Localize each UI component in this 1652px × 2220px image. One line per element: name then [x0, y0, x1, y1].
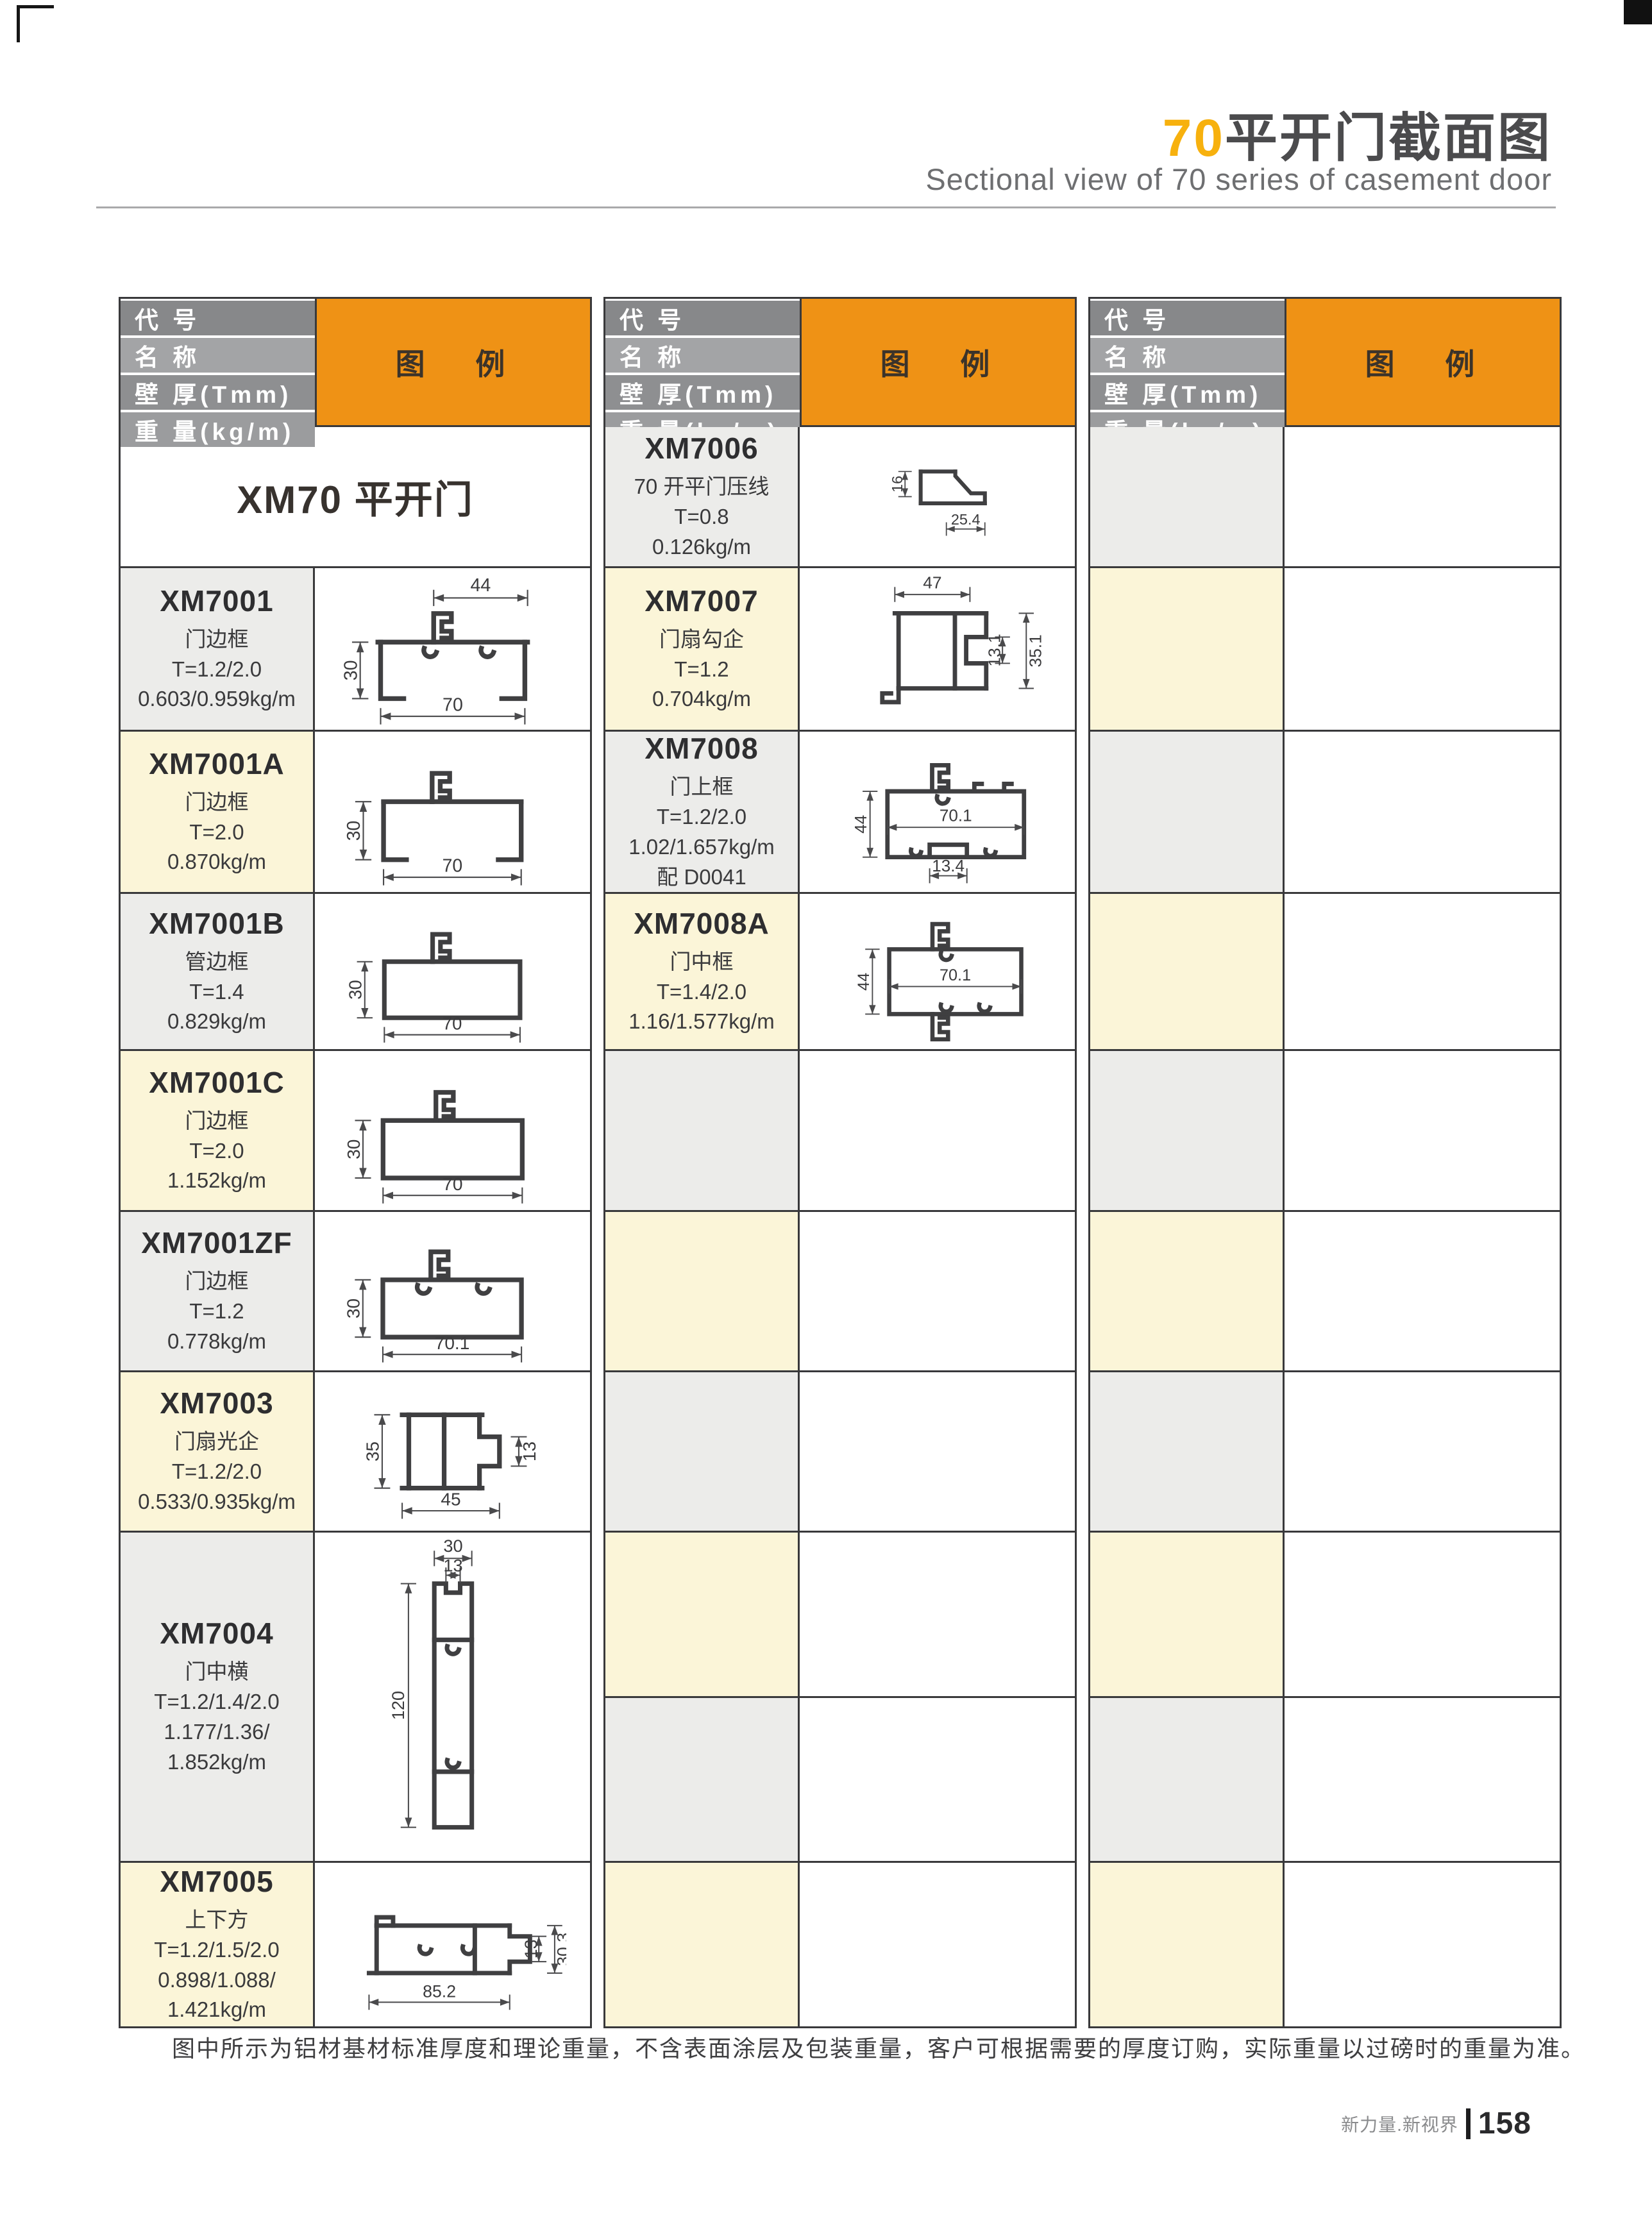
empty-diagram-cell [1285, 894, 1560, 1049]
crop-mark-top-left [17, 5, 20, 42]
dimension-label: 70.1 [940, 806, 972, 825]
legend-header-cell: 图 例 [800, 299, 1075, 425]
diagram-cell: 3070 [315, 732, 590, 892]
profile-spec-line: 上下方 [185, 1905, 249, 1935]
profile-spec-line: T=1.2/2.0 [172, 1457, 262, 1487]
section-drawing: 1330.385.2 [339, 1865, 567, 2024]
profile-spec-line: 0.829kg/m [167, 1007, 266, 1037]
profile-spec-line: T=1.2/1.5/2.0 [154, 1935, 279, 1965]
diagram-cell: 351345 [315, 1372, 590, 1531]
diagram-cell: 1330.385.2 [315, 1863, 590, 2026]
profile-spec-line: 门扇勾企 [659, 625, 744, 655]
dimension-label: 13 [519, 1442, 539, 1461]
crop-mark-top-right [1624, 0, 1652, 24]
spec-cell: XM7008A门中框T=1.4/2.01.16/1.577kg/m [605, 894, 800, 1049]
crop-mark-top-left [17, 5, 54, 8]
dimension-label: 35 [363, 1442, 383, 1461]
page-number: 158 [1478, 2106, 1531, 2141]
header-label: 代 号 [1090, 301, 1285, 335]
dimension-label: 30 [443, 1536, 462, 1556]
section-drawing: 4713.135.1 [825, 571, 1050, 727]
dimension-label: 70 [442, 1014, 462, 1034]
diagram-cell: 3070 [315, 894, 590, 1049]
table-header: 代 号名 称壁 厚(Tmm)重 量(kg/m)图 例 [605, 299, 1075, 425]
table-row [605, 1696, 1075, 1861]
title-divider [96, 206, 1556, 208]
section-drawing: 3070 [332, 1054, 573, 1207]
page-subtitle: Sectional view of 70 series of casement … [925, 162, 1552, 197]
header-label: 名 称 [1090, 338, 1285, 373]
table-row: XM7001ZF门边框T=1.20.778kg/m3070.1 [121, 1210, 590, 1370]
table-row [1090, 1861, 1560, 2026]
profile-spec-line: 0.704kg/m [652, 684, 751, 714]
profile-spec-line: T=1.2/2.0 [172, 655, 262, 685]
profile-spec-line: 配 D0041 [657, 862, 746, 893]
empty-spec-cell [1090, 894, 1285, 1049]
diagram-cell: 4713.135.1 [800, 568, 1075, 730]
empty-spec-cell [1090, 1372, 1285, 1531]
dimension-label: 13 [521, 1940, 541, 1959]
diagram-cell: 1625.4 [800, 427, 1075, 566]
dimension-label: 30.3 [553, 1933, 566, 1966]
table-row [605, 1049, 1075, 1210]
dimension-label: 120 [388, 1691, 408, 1720]
profile-table: 代 号名 称壁 厚(Tmm)重 量(kg/m)图 例XM70 平开门XM7001… [119, 297, 592, 2028]
section-drawing: 3013120 [336, 1535, 569, 1858]
section-drawing: 1625.4 [837, 430, 1038, 564]
dimension-label: 70 [442, 1173, 462, 1194]
dimension-label: 25.4 [951, 511, 981, 528]
profile-spec-line: 1.16/1.577kg/m [628, 1007, 775, 1037]
profile-spec-line: 门上框 [670, 772, 734, 802]
table-row [605, 1370, 1075, 1531]
profile-spec-line: 1.852kg/m [167, 1747, 266, 1778]
empty-spec-cell [605, 1051, 800, 1210]
table-row [605, 1210, 1075, 1370]
dimension-label: 70.1 [940, 966, 971, 984]
dimension-label: 30 [341, 660, 361, 680]
dimension-label: 47 [923, 573, 941, 592]
dimension-label: 70 [442, 856, 463, 877]
profile-code: XM7001C [149, 1065, 285, 1100]
spec-cell: XM700670 开平门压线T=0.80.126kg/m [605, 427, 800, 566]
empty-spec-cell [1090, 1863, 1285, 2026]
profile-spec-line: 1.177/1.36/ [164, 1717, 269, 1747]
spec-cell: XM7001B管边框T=1.40.829kg/m [121, 894, 315, 1049]
section-drawing: 351345 [332, 1375, 572, 1528]
legend-header-cell: 图 例 [1285, 299, 1560, 425]
section-drawing: 3070 [331, 734, 574, 889]
empty-diagram-cell [800, 1212, 1075, 1370]
catalog-page: 70平开门截面图 Sectional view of 70 series of … [0, 0, 1652, 2220]
table-row: XM7001C门边框T=2.01.152kg/m3070 [121, 1049, 590, 1210]
dimension-label: 16 [889, 476, 906, 492]
profile-code: XM7007 [645, 584, 758, 618]
empty-spec-cell [1090, 1051, 1285, 1210]
profile-spec-line: 0.898/1.088/ [158, 1965, 276, 1996]
spec-cell: XM7001C门边框T=2.01.152kg/m [121, 1051, 315, 1210]
table-row [1090, 1210, 1560, 1370]
footer-brand: 新力量.新视界 [1341, 2111, 1458, 2137]
diagram-cell: 4470.1 [800, 894, 1075, 1049]
header-label: 壁 厚(Tmm) [121, 375, 315, 410]
empty-diagram-cell [1285, 568, 1560, 730]
dimension-label: 44 [470, 575, 491, 596]
table-row: XM7001A门边框T=2.00.870kg/m3070 [121, 730, 590, 892]
diagram-cell: 3013120 [315, 1533, 590, 1861]
dimension-label: 13.1 [984, 634, 1004, 666]
section-drawing: 4470.113.4 [825, 734, 1049, 889]
table-row: XM7008门上框T=1.2/2.01.02/1.657kg/m配 D00414… [605, 730, 1075, 892]
profile-spec-line: 1.02/1.657kg/m [628, 832, 775, 862]
table-row [1090, 730, 1560, 892]
profile-spec-line: T=0.8 [674, 502, 729, 532]
empty-diagram-cell [1285, 1372, 1560, 1531]
profile-code: XM7001B [149, 906, 285, 941]
profile-code: XM7001 [160, 584, 273, 618]
empty-spec-cell [1090, 427, 1285, 566]
spec-cell: XM7003门扇光企T=1.2/2.00.533/0.935kg/m [121, 1372, 315, 1531]
empty-spec-cell [1090, 732, 1285, 892]
empty-diagram-cell [1285, 1698, 1560, 1861]
profile-spec-line: T=1.2/2.0 [657, 802, 746, 832]
footer-divider [1466, 2108, 1471, 2139]
empty-spec-cell [1090, 568, 1285, 730]
table-row: XM7001门边框T=1.2/2.00.603/0.959kg/m443070 [121, 566, 590, 730]
profile-spec-line: T=1.2 [674, 655, 729, 685]
profile-code: XM7006 [645, 431, 758, 466]
profile-spec-line: 0.778kg/m [167, 1327, 266, 1357]
dimension-label: 44 [855, 973, 873, 991]
profile-spec-line: 门中横 [185, 1657, 249, 1687]
table-row [605, 1861, 1075, 2026]
dimension-label: 30 [342, 1139, 363, 1159]
profile-spec-line: 0.603/0.959kg/m [138, 684, 296, 714]
table-row: XM7008A门中框T=1.4/2.01.16/1.577kg/m4470.1 [605, 892, 1075, 1049]
diagram-cell: 443070 [315, 568, 590, 730]
dimension-label: 30 [344, 1299, 364, 1318]
spec-cell: XM7004门中横T=1.2/1.4/2.01.177/1.36/1.852kg… [121, 1533, 315, 1861]
spec-cell: XM7001ZF门边框T=1.20.778kg/m [121, 1212, 315, 1370]
table-row [1090, 1370, 1560, 1531]
table-row [1090, 1696, 1560, 1861]
profile-spec-line: 70 开平门压线 [634, 472, 770, 502]
table-row: XM70 平开门 [121, 425, 590, 566]
footnote: 图中所示为铝材基材标准厚度和理论重量，不含表面涂层及包装重量，客户可根据需要的厚… [172, 2030, 1585, 2064]
header-label: 壁 厚(Tmm) [1090, 375, 1285, 410]
table-header: 代 号名 称壁 厚(Tmm)重 量(kg/m)图 例 [121, 299, 590, 425]
profile-code: XM7008A [634, 906, 770, 941]
profile-spec-line: 门中框 [670, 947, 734, 977]
empty-diagram-cell [1285, 1863, 1560, 2026]
dimension-label: 85.2 [423, 1982, 456, 2001]
table-row [1090, 1049, 1560, 1210]
empty-spec-cell [605, 1372, 800, 1531]
spec-cell: XM7001门边框T=1.2/2.00.603/0.959kg/m [121, 568, 315, 730]
dimension-label: 45 [441, 1490, 461, 1509]
empty-diagram-cell [1285, 427, 1560, 566]
section-drawing: 3070.1 [332, 1215, 572, 1368]
dimension-label: 30 [344, 821, 364, 841]
spec-cell: XM7007门扇勾企T=1.20.704kg/m [605, 568, 800, 730]
profile-spec-line: 门扇光企 [174, 1427, 259, 1457]
dimension-label: 44 [851, 815, 870, 834]
profile-spec-line: 0.533/0.935kg/m [138, 1487, 296, 1517]
profile-spec-line: 1.152kg/m [167, 1166, 266, 1196]
series-banner: XM70 平开门 [121, 427, 590, 566]
section-drawing: 4470.1 [829, 896, 1045, 1047]
spec-cell: XM7005上下方T=1.2/1.5/2.00.898/1.088/1.421k… [121, 1863, 315, 2026]
profile-spec-line: T=2.0 [189, 1136, 244, 1166]
dimension-label: 30 [346, 980, 366, 1000]
empty-spec-cell [605, 1533, 800, 1696]
profile-spec-line: T=1.2 [189, 1297, 244, 1327]
table-row: XM7001B管边框T=1.40.829kg/m3070 [121, 892, 590, 1049]
empty-spec-cell [1090, 1698, 1285, 1861]
header-label: 代 号 [121, 301, 315, 335]
page-footer: 新力量.新视界 158 [1341, 2106, 1531, 2141]
profile-code: XM7008 [645, 731, 758, 766]
table-row [1090, 566, 1560, 730]
page-title: 70平开门截面图 [1163, 95, 1552, 171]
header-label-stack: 代 号名 称壁 厚(Tmm)重 量(kg/m) [1090, 299, 1285, 425]
empty-diagram-cell [800, 1533, 1075, 1696]
empty-diagram-cell [800, 1698, 1075, 1861]
table-row [1090, 425, 1560, 566]
table-row: XM7004门中横T=1.2/1.4/2.01.177/1.36/1.852kg… [121, 1531, 590, 1861]
section-drawing: 443070 [330, 571, 575, 727]
page-title-text: 平开门截面图 [1225, 109, 1552, 167]
profile-spec-line: 0.870kg/m [167, 847, 266, 877]
spec-cell: XM7001A门边框T=2.00.870kg/m [121, 732, 315, 892]
empty-diagram-cell [1285, 732, 1560, 892]
page-title-accent: 70 [1163, 109, 1225, 167]
empty-spec-cell [605, 1863, 800, 2026]
dimension-label: 13.4 [932, 856, 965, 875]
profile-spec-line: T=1.2/1.4/2.0 [154, 1687, 279, 1717]
table-row [1090, 892, 1560, 1049]
spec-cell: XM7008门上框T=1.2/2.01.02/1.657kg/m配 D0041 [605, 732, 800, 892]
table-row: XM7003门扇光企T=1.2/2.00.533/0.935kg/m351345 [121, 1370, 590, 1531]
profile-table: 代 号名 称壁 厚(Tmm)重 量(kg/m)图 例 [1088, 297, 1562, 2028]
profile-spec-line: 0.126kg/m [652, 532, 751, 562]
empty-diagram-cell [800, 1051, 1075, 1210]
dimension-label: 35.1 [1026, 634, 1045, 667]
section-drawing: 3070 [335, 896, 569, 1047]
header-label: 壁 厚(Tmm) [605, 375, 800, 410]
empty-diagram-cell [800, 1863, 1075, 2026]
empty-diagram-cell [800, 1372, 1075, 1531]
diagram-cell: 3070 [315, 1051, 590, 1210]
header-label: 名 称 [605, 338, 800, 373]
empty-spec-cell [1090, 1533, 1285, 1696]
dimension-label: 70 [442, 695, 463, 716]
profile-code: XM7001A [149, 746, 285, 781]
profile-spec-line: 门边框 [185, 1266, 249, 1297]
profile-code: XM7003 [160, 1386, 273, 1420]
empty-spec-cell [605, 1698, 800, 1861]
table-row: XM7007门扇勾企T=1.20.704kg/m4713.135.1 [605, 566, 1075, 730]
profile-spec-line: T=1.4 [189, 977, 244, 1007]
profile-spec-line: 门边框 [185, 787, 249, 818]
header-label: 名 称 [121, 338, 315, 373]
profile-spec-line: 管边框 [185, 947, 249, 977]
dimension-label: 13 [443, 1555, 462, 1575]
diagram-cell: 3070.1 [315, 1212, 590, 1370]
diagram-cell: 4470.113.4 [800, 732, 1075, 892]
profile-code: XM7001ZF [141, 1225, 292, 1260]
header-label-stack: 代 号名 称壁 厚(Tmm)重 量(kg/m) [121, 299, 315, 425]
profile-spec-line: 1.421kg/m [167, 1995, 266, 2025]
profile-spec-line: T=1.4/2.0 [657, 977, 746, 1007]
empty-spec-cell [605, 1212, 800, 1370]
profile-spec-line: T=2.0 [189, 818, 244, 848]
profile-code: XM7005 [160, 1864, 273, 1899]
header-label: 代 号 [605, 301, 800, 335]
table-header: 代 号名 称壁 厚(Tmm)重 量(kg/m)图 例 [1090, 299, 1560, 425]
profile-spec-line: 门边框 [185, 625, 249, 655]
table-row: XM700670 开平门压线T=0.80.126kg/m1625.4 [605, 425, 1075, 566]
empty-diagram-cell [1285, 1533, 1560, 1696]
profile-table: 代 号名 称壁 厚(Tmm)重 量(kg/m)图 例XM700670 开平门压线… [603, 297, 1077, 2028]
table-row: XM7005上下方T=1.2/1.5/2.00.898/1.088/1.421k… [121, 1861, 590, 2026]
profile-code: XM7004 [160, 1616, 273, 1651]
profile-spec-line: 门边框 [185, 1106, 249, 1136]
header-label-stack: 代 号名 称壁 厚(Tmm)重 量(kg/m) [605, 299, 800, 425]
empty-spec-cell [1090, 1212, 1285, 1370]
legend-header-cell: 图 例 [315, 299, 590, 425]
dimension-label: 70.1 [435, 1333, 470, 1353]
table-row [1090, 1531, 1560, 1696]
empty-diagram-cell [1285, 1212, 1560, 1370]
table-row [605, 1531, 1075, 1696]
empty-diagram-cell [1285, 1051, 1560, 1210]
